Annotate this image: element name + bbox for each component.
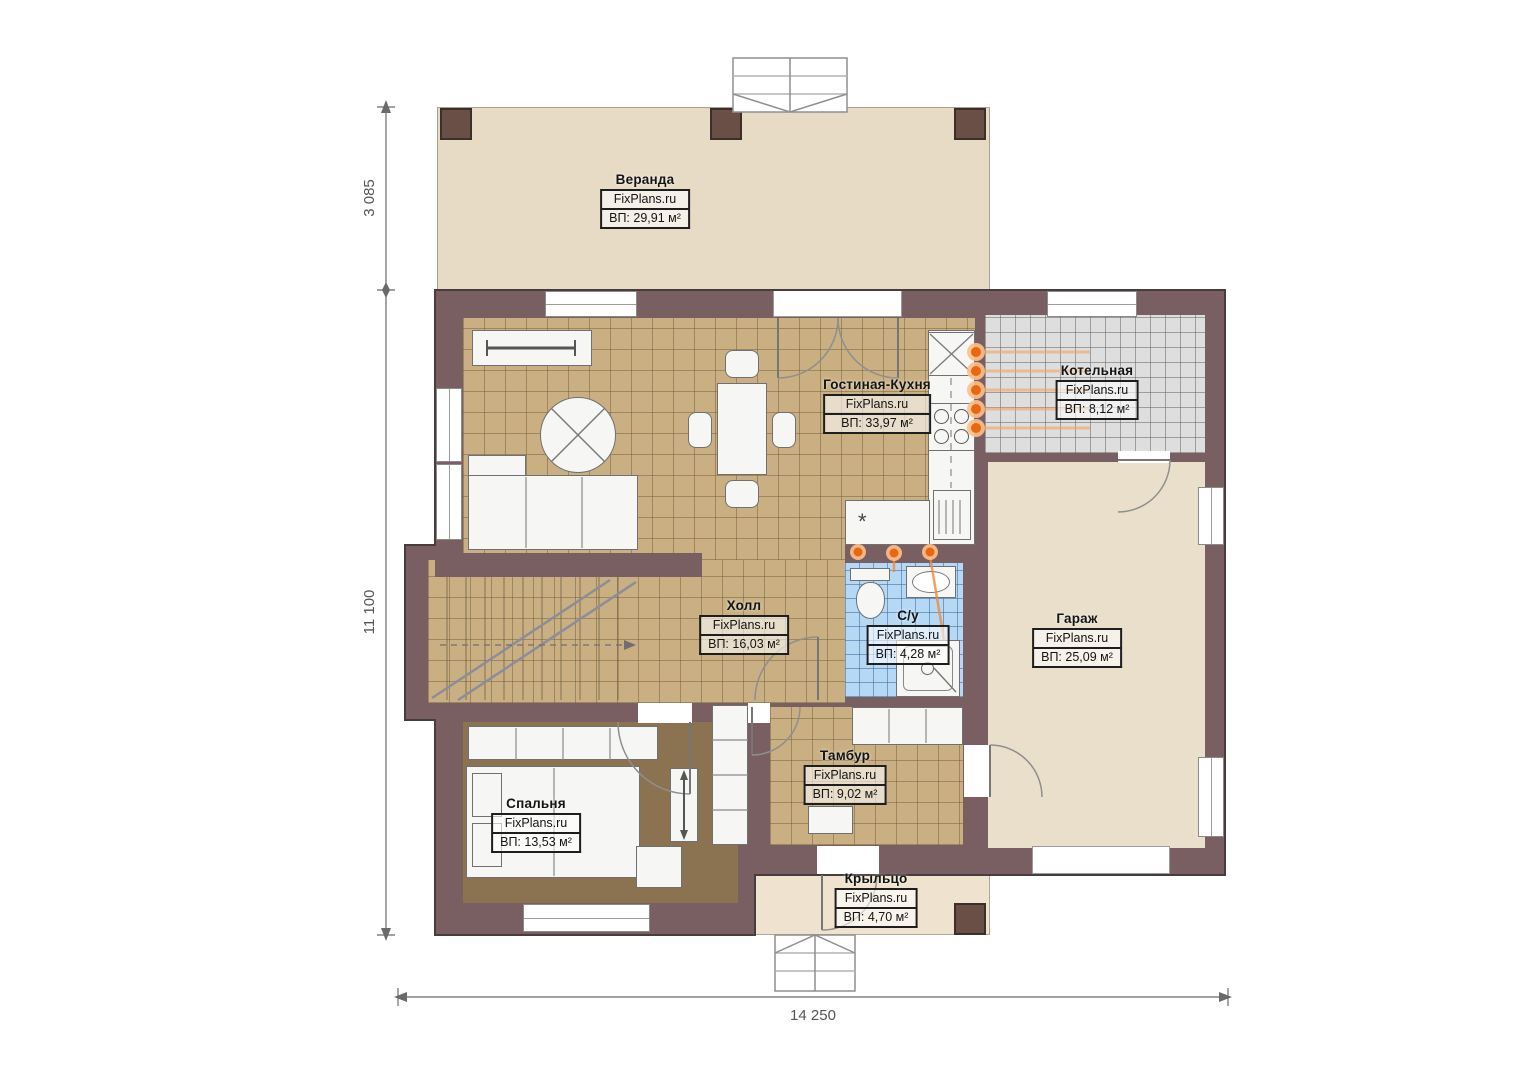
room-area: ВП: 4,70 м² [835, 909, 918, 928]
room-label-veranda: Веранда FixPlans.ru ВП: 29,91 м² [600, 172, 690, 229]
dim-house-width: 14 250 [790, 1007, 836, 1024]
tambur-cabinets [852, 707, 963, 745]
wall-sofa-partition [435, 553, 702, 577]
room-name: Веранда [600, 172, 690, 187]
porch-post [954, 903, 986, 935]
dimension-left [377, 100, 395, 941]
veranda-post [440, 108, 472, 140]
veranda-steps [733, 58, 847, 112]
dining-chair-bottom [725, 480, 759, 508]
room-area: ВП: 33,97 м² [823, 415, 931, 434]
wardrobe [468, 726, 658, 760]
bedroom-radiator [670, 768, 698, 842]
room-name: Холл [699, 598, 789, 613]
wall-bath-north [845, 545, 988, 563]
room-name: Котельная [1056, 363, 1139, 378]
island-symbol: * [858, 511, 867, 533]
watermark: FixPlans.ru [867, 625, 950, 646]
burner [934, 429, 949, 444]
room-label-boiler: Котельная FixPlans.ru ВП: 8,12 м² [1056, 363, 1139, 420]
window-living-west-2 [436, 464, 462, 540]
room-area: ВП: 4,28 м² [867, 646, 950, 665]
room-label-tambur: Тамбур FixPlans.ru ВП: 9,02 м² [804, 748, 887, 805]
opening-entrance-door [817, 846, 879, 874]
watermark: FixPlans.ru [491, 813, 581, 834]
room-name: Гараж [1032, 611, 1122, 626]
room-label-porch: Крыльцо FixPlans.ru ВП: 4,70 м² [835, 871, 918, 928]
sofa-seat [468, 475, 638, 550]
opening-bedroom-door [638, 703, 692, 723]
room-area: ВП: 25,09 м² [1032, 649, 1122, 668]
watermark: FixPlans.ru [699, 615, 789, 636]
burner [934, 409, 949, 424]
veranda-post [710, 108, 742, 140]
watermark: FixPlans.ru [1032, 628, 1122, 649]
window-garage-east-2 [1198, 757, 1224, 837]
opening-veranda-doors [773, 290, 902, 317]
room-label-bedroom: Спальня FixPlans.ru ВП: 13,53 м² [491, 796, 581, 853]
room-area: ВП: 8,12 м² [1056, 401, 1139, 420]
window-bedroom-south [523, 904, 650, 932]
room-name: Тамбур [804, 748, 887, 763]
tambur-bench [808, 806, 853, 834]
floor-plan-canvas: * [0, 0, 1528, 1080]
watermark: FixPlans.ru [835, 888, 918, 909]
room-name: Крыльцо [835, 871, 918, 886]
dim-veranda-depth: 3 085 [361, 179, 378, 217]
hall-closet [712, 705, 748, 845]
room-label-garage: Гараж FixPlans.ru ВП: 25,09 м² [1032, 611, 1122, 668]
room-area: ВП: 29,91 м² [600, 210, 690, 229]
kitchen-sink-unit [933, 490, 971, 540]
room-label-living-kitchen: Гостиная-Кухня FixPlans.ru ВП: 33,97 м² [823, 377, 931, 434]
window-boiler-north [1047, 291, 1137, 317]
watermark: FixPlans.ru [804, 765, 887, 786]
opening-boiler-door [1118, 451, 1170, 463]
dim-house-depth: 11 100 [361, 590, 378, 635]
veranda-post [954, 108, 986, 140]
window-living-north [545, 291, 637, 317]
opening-tambur-door [748, 703, 770, 723]
dimension-bottom [394, 988, 1232, 1006]
room-area: ВП: 16,03 м² [699, 636, 789, 655]
round-table [540, 397, 616, 473]
room-label-hall: Холл FixPlans.ru ВП: 16,03 м² [699, 598, 789, 655]
dining-chair-left [688, 412, 712, 448]
dining-table [717, 383, 767, 475]
dining-chair-top [725, 350, 759, 378]
watermark: FixPlans.ru [1056, 380, 1139, 401]
bench [472, 330, 592, 366]
room-name: Спальня [491, 796, 581, 811]
watermark: FixPlans.ru [600, 189, 690, 210]
stove [928, 403, 975, 451]
dining-chair-right [772, 412, 796, 448]
bath-sink-basin [912, 571, 950, 593]
room-label-bathroom: С/у FixPlans.ru ВП: 4,28 м² [867, 608, 950, 665]
bedroom-stool [636, 846, 682, 888]
toilet-tank [850, 568, 890, 581]
window-garage-east-1 [1198, 487, 1224, 545]
porch-steps [775, 935, 855, 991]
window-living-west-1 [436, 388, 462, 462]
opening-garage-gate [1032, 846, 1170, 874]
burner [954, 409, 969, 424]
fridge [928, 332, 975, 376]
room-name: С/у [867, 608, 950, 623]
room-area: ВП: 13,53 м² [491, 834, 581, 853]
room-name: Гостиная-Кухня [823, 377, 931, 392]
room-area: ВП: 9,02 м² [804, 786, 887, 805]
opening-garage-side-door [964, 745, 990, 797]
watermark: FixPlans.ru [823, 394, 931, 415]
burner [954, 429, 969, 444]
